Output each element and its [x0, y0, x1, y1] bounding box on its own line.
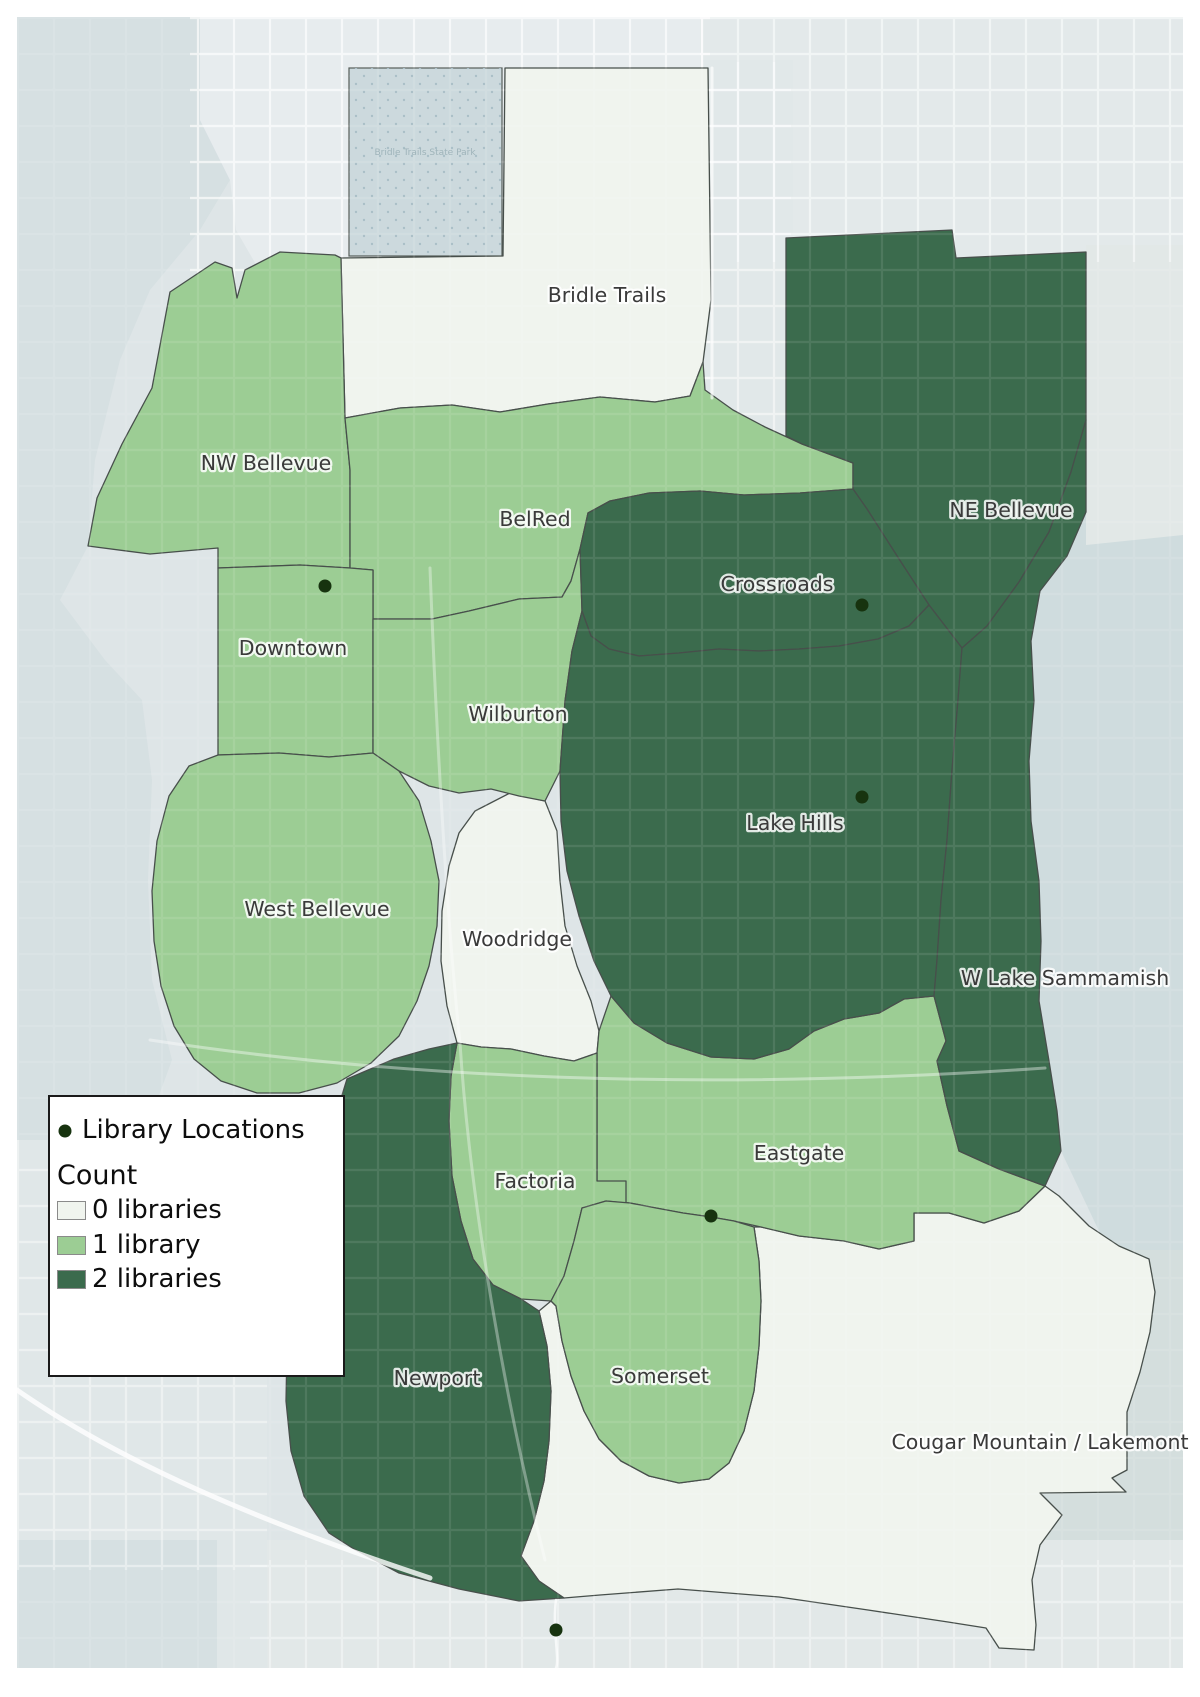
swatch-1-library-icon: [57, 1236, 86, 1255]
legend-library-locations-label: Library Locations: [82, 1114, 305, 1146]
library-location-dot: [550, 1624, 563, 1637]
bellevue-library-map: Bridle Trails NW Bellevue BelRed NE Bell…: [0, 0, 1200, 1697]
legend-item-0-label: 0 libraries: [92, 1194, 222, 1226]
label-downtown: Downtown: [239, 636, 347, 660]
label-belred: BelRed: [499, 507, 570, 531]
label-nw-bellevue: NW Bellevue: [201, 451, 332, 475]
legend-item-1-label: 1 library: [92, 1229, 200, 1261]
library-location-dot: [705, 1210, 718, 1223]
label-bridle-trails-state-park: Bridle Trails State Park: [374, 148, 476, 158]
label-somerset: Somerset: [611, 1364, 709, 1388]
label-ne-bellevue: NE Bellevue: [949, 498, 1072, 522]
library-location-dot: [319, 580, 332, 593]
legend-item-2-label: 2 libraries: [92, 1263, 222, 1295]
legend-count-title: Count: [57, 1159, 137, 1193]
street-grid-overlay: [17, 17, 1183, 1668]
label-eastgate: Eastgate: [754, 1141, 844, 1165]
swatch-0-libraries-icon: [57, 1201, 86, 1220]
label-lake-hills: Lake Hills: [746, 811, 843, 835]
legend: Library Locations Count 0 libraries 1 li…: [48, 1095, 345, 1377]
library-location-dot: [856, 599, 869, 612]
label-west-bellevue: West Bellevue: [244, 897, 389, 921]
label-bridle-trails: Bridle Trails: [548, 283, 667, 307]
label-crossroads: Crossroads: [721, 572, 834, 596]
library-location-dot: [856, 791, 869, 804]
label-woodridge: Woodridge: [462, 927, 572, 951]
library-dot-icon: [57, 1123, 73, 1139]
bellevue-library-map-figure: Bridle Trails NW Bellevue BelRed NE Bell…: [0, 0, 1200, 1697]
label-factoria: Factoria: [494, 1169, 575, 1193]
label-wilburton: Wilburton: [468, 702, 567, 726]
label-w-lake-sammamish: W Lake Sammamish: [961, 966, 1169, 990]
label-cougar-mountain-lakemont: Cougar Mountain / Lakemont: [891, 1430, 1188, 1454]
label-newport: Newport: [394, 1366, 481, 1390]
swatch-2-libraries-icon: [57, 1270, 86, 1289]
